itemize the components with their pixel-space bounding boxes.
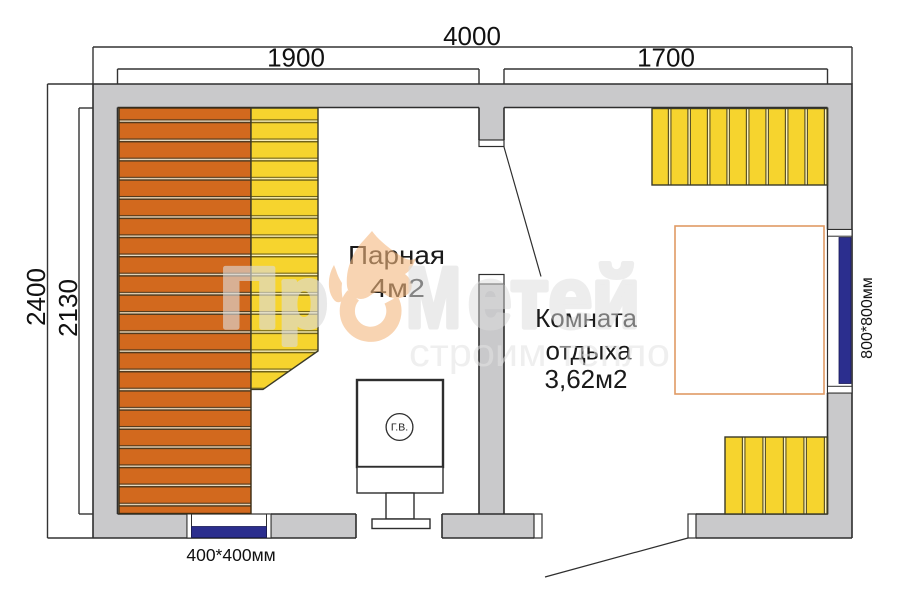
svg-text:2400: 2400: [21, 268, 51, 326]
svg-text:строим тепло: строим тепло: [409, 332, 670, 375]
svg-text:2130: 2130: [53, 279, 83, 337]
svg-text:800*800мм: 800*800мм: [859, 277, 876, 359]
svg-text:400*400мм: 400*400мм: [186, 545, 275, 565]
svg-text:1700: 1700: [637, 43, 695, 73]
svg-text:Г.В.: Г.В.: [391, 422, 408, 434]
svg-text:Пр: Пр: [220, 251, 328, 346]
svg-text:4000: 4000: [443, 21, 501, 51]
svg-text:1900: 1900: [267, 43, 325, 73]
